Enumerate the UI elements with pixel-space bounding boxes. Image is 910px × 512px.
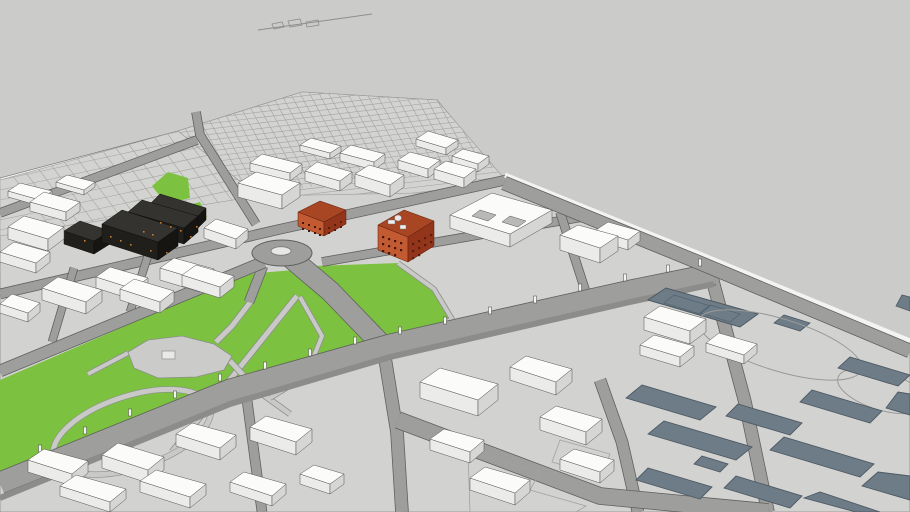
building-black-windows-6: [170, 226, 172, 228]
roundabout-island: [271, 247, 291, 256]
building-black-windows-1: [120, 240, 122, 242]
building-red-large-windows-side-1: [418, 247, 420, 249]
building-red-small-windows-side-5: [340, 226, 342, 228]
building-black-windows-0: [110, 236, 112, 238]
boulevard-posts-13: [624, 274, 627, 281]
boulevard-posts-10: [489, 307, 492, 314]
building-red-large-windows-7: [400, 249, 402, 251]
building-red-small-windows-5: [308, 230, 310, 232]
boulevard-posts-1: [84, 427, 87, 434]
building-red-large-rooftop-1: [388, 220, 395, 224]
scene-canvas[interactable]: [0, 0, 910, 512]
boulevard-posts-15: [699, 259, 702, 266]
building-red-small-windows-side-2: [340, 221, 342, 223]
building-red-large-windows-5: [388, 245, 390, 247]
park-monument: [162, 351, 175, 359]
building-red-large-windows-9: [388, 252, 390, 254]
building-red-large-windows-side-4: [412, 243, 414, 245]
boulevard-posts-6: [309, 349, 312, 356]
boulevard-posts-4: [219, 374, 222, 381]
boulevard-posts-9: [444, 317, 447, 324]
building-black-windows-2: [130, 244, 132, 246]
building-red-small-windows-6: [314, 232, 316, 234]
building-red-large-windows-side-2: [424, 244, 426, 246]
boulevard-posts-8: [399, 327, 402, 334]
boulevard-posts-5: [264, 362, 267, 369]
building-red-large-windows-1: [388, 238, 390, 240]
building-black-windows-3: [143, 231, 145, 233]
building-black-windows-9: [150, 250, 152, 252]
building-red-large-windows-8: [382, 250, 384, 252]
building-red-small-windows-side-0: [328, 227, 330, 229]
building-red-small-windows-side-1: [334, 224, 336, 226]
building-red-large-windows-side-7: [430, 234, 432, 236]
model-viewport[interactable]: [0, 0, 910, 512]
building-red-small-windows-3: [319, 228, 321, 230]
building-red-small-windows-0: [302, 222, 304, 224]
building-red-large-windows-4: [382, 243, 384, 245]
building-black-windows-10: [166, 252, 168, 254]
building-red-large-windows-10: [394, 254, 396, 256]
building-red-large-windows-6: [394, 247, 396, 249]
building-red-large-windows-3: [400, 242, 402, 244]
building-red-large-windows-2: [394, 240, 396, 242]
building-black-windows-12: [196, 226, 198, 228]
boulevard-posts-3: [174, 391, 177, 398]
building-red-small-windows-side-3: [328, 232, 330, 234]
building-black-windows-11: [190, 236, 192, 238]
building-red-small-windows-7: [319, 234, 321, 236]
boulevard-posts-11: [534, 296, 537, 303]
building-red-small-windows-4: [302, 228, 304, 230]
building-red-large-windows-side-0: [412, 250, 414, 252]
building-red-large-windows-side-6: [424, 237, 426, 239]
building-red-small-windows-2: [314, 226, 316, 228]
boulevard-posts-7: [354, 337, 357, 344]
boulevard-posts-2: [129, 409, 132, 416]
building-red-small-windows-1: [308, 224, 310, 226]
building-black-windows-7: [180, 230, 182, 232]
building-red-large-windows-side-8: [412, 257, 414, 259]
building-red-large-rooftop-2: [400, 225, 406, 229]
building-red-large-windows-side-5: [418, 240, 420, 242]
building-black-windows-4: [152, 234, 154, 236]
building-red-small-windows-side-4: [334, 229, 336, 231]
boulevard-posts-12: [579, 284, 582, 291]
boulevard-posts-14: [667, 265, 670, 272]
building-black-windows-8: [84, 240, 86, 242]
building-red-large-dome: [395, 215, 402, 221]
building-black-windows-5: [160, 222, 162, 224]
building-red-large-windows-side-3: [430, 241, 432, 243]
building-red-large-windows-side-9: [418, 254, 420, 256]
building-red-large-windows-0: [382, 236, 384, 238]
